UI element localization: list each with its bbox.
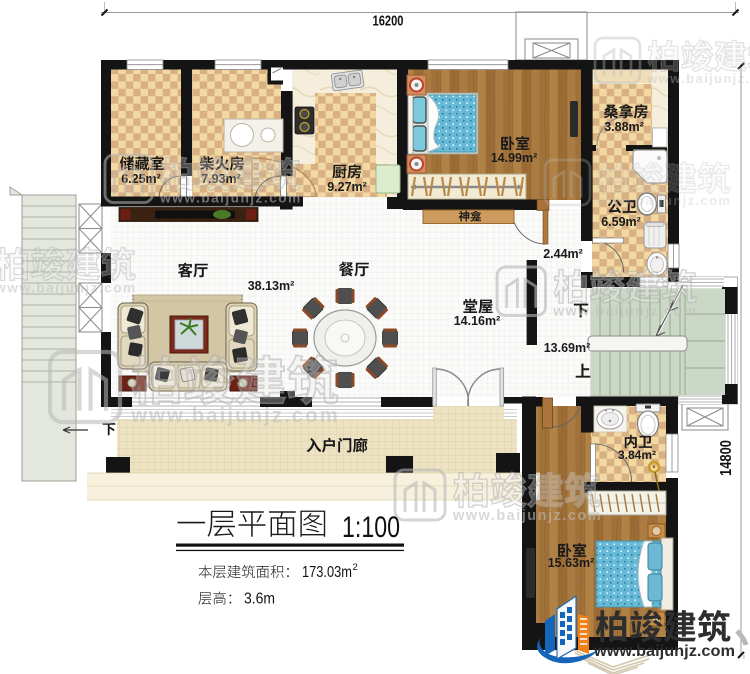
svg-text:www.baijunjz.com: www.baijunjz.com — [593, 643, 735, 660]
svg-text:1:100: 1:100 — [342, 511, 400, 544]
svg-text:14.99m²: 14.99m² — [491, 151, 538, 165]
svg-text:3.88m²: 3.88m² — [604, 120, 644, 134]
svg-text:3.84m²: 3.84m² — [618, 448, 656, 462]
svg-text:15.63m²: 15.63m² — [548, 556, 595, 570]
svg-text:14800: 14800 — [718, 440, 735, 476]
svg-text:6.59m²: 6.59m² — [601, 215, 641, 229]
svg-text:2: 2 — [353, 562, 358, 573]
svg-text:38.13m²: 38.13m² — [248, 279, 295, 293]
svg-text:2.44m²: 2.44m² — [543, 247, 583, 261]
svg-text:3.6m: 3.6m — [244, 591, 275, 608]
svg-text:16200: 16200 — [373, 13, 404, 30]
svg-text:13.69m²: 13.69m² — [544, 341, 591, 355]
svg-text:14.16m²: 14.16m² — [454, 314, 501, 328]
svg-text:9.27m²: 9.27m² — [327, 180, 367, 194]
svg-text:173.03m: 173.03m — [302, 564, 352, 581]
